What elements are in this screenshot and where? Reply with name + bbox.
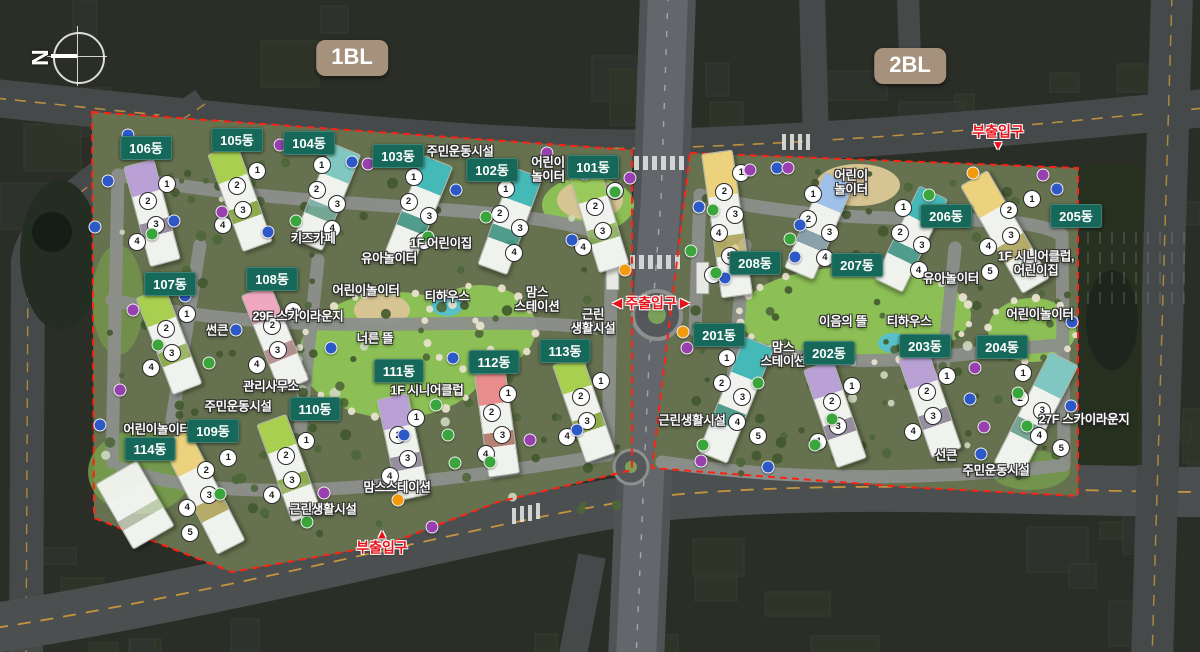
facility-label: 티하우스 [425, 290, 470, 304]
block-badge: 2BL [874, 48, 946, 84]
point-marker [430, 399, 443, 412]
point-marker [146, 228, 159, 241]
facility-label: 맘스 스테이션 [515, 287, 560, 314]
unit-number-badge: 2 [491, 205, 509, 223]
point-marker [1021, 420, 1034, 433]
point-marker [480, 211, 493, 224]
unit-number-badge: 2 [157, 320, 175, 338]
facility-label: 키즈카페 [291, 232, 336, 246]
facility-label: 29F 스카이라운지 [252, 310, 343, 324]
unit-number-badge: 1 [804, 185, 822, 203]
unit-number-badge: 1 [405, 168, 423, 186]
unit-number-badge: 3 [924, 407, 942, 425]
compass-north-letter: N [27, 49, 54, 66]
compass-north-pointer [51, 54, 77, 58]
point-marker [695, 455, 708, 468]
point-marker [484, 456, 497, 469]
point-marker [784, 233, 797, 246]
point-marker [789, 251, 802, 264]
point-marker [398, 429, 411, 442]
unit-number-badge: 4 [505, 244, 523, 262]
building-label: 201동 [693, 323, 745, 347]
facility-label: 유아놀이터 [361, 252, 417, 266]
facility-label: 맘스 스테이션 [761, 342, 806, 369]
building-label: 207동 [831, 253, 883, 277]
unit-number-badge: 1 [938, 367, 956, 385]
point-marker [152, 339, 165, 352]
unit-number-badge: 1 [297, 432, 315, 450]
point-marker [1065, 400, 1078, 413]
point-marker [290, 215, 303, 228]
unit-number-badge: 2 [713, 374, 731, 392]
building-label: 113동 [540, 339, 591, 363]
point-marker [609, 186, 622, 199]
unit-number-badge: 5 [749, 427, 767, 445]
point-marker [975, 448, 988, 461]
unit-number-badge: 2 [918, 383, 936, 401]
unit-number-badge: 3 [493, 426, 511, 444]
building-label: 205동 [1050, 204, 1102, 228]
point-marker [262, 226, 275, 239]
facility-label: 이음의 뜰 [819, 315, 867, 329]
unit-number-badge: 2 [197, 461, 215, 479]
building-label: 114동 [125, 437, 176, 461]
unit-number-badge: 1 [219, 449, 237, 467]
point-marker [524, 434, 537, 447]
unit-number-badge: 1 [313, 156, 331, 174]
unit-number-badge: 2 [823, 393, 841, 411]
building-label: 105동 [211, 128, 263, 152]
unit-number-badge: 4 [1030, 427, 1048, 445]
point-marker [677, 326, 690, 339]
point-marker [346, 156, 359, 169]
facility-label: 1F 시니어클럽, 어린이집 [998, 251, 1074, 278]
entrance-arrow-down-icon: ▼ [992, 139, 1005, 152]
unit-number-badge: 4 [979, 238, 997, 256]
point-marker [794, 219, 807, 232]
point-marker [426, 521, 439, 534]
building-label: 107동 [144, 272, 196, 296]
building-label: 106동 [120, 136, 172, 160]
facility-label: 썬큰 [206, 324, 228, 338]
point-marker [392, 494, 405, 507]
building-label: 103동 [372, 144, 424, 168]
point-marker [681, 342, 694, 355]
point-marker [619, 264, 632, 277]
point-marker [693, 201, 706, 214]
point-marker [1051, 183, 1064, 196]
unit-number-badge: 1 [178, 305, 196, 323]
point-marker [964, 393, 977, 406]
unit-number-badge: 2 [891, 224, 909, 242]
facility-label: 1F 시니어클럽 [390, 384, 463, 398]
unit-number-badge: 3 [821, 224, 839, 242]
building-label: 101동 [567, 155, 619, 179]
unit-number-badge: 1 [248, 162, 266, 180]
unit-number-badge: 3 [913, 236, 931, 254]
unit-number-badge: 4 [128, 233, 146, 251]
unit-number-badge: 2 [139, 192, 157, 210]
unit-number-badge: 1 [894, 199, 912, 217]
facility-label: 근린생활시설 [658, 414, 725, 428]
facility-label: 근린생활시설 [289, 503, 356, 517]
point-marker [89, 221, 102, 234]
building-label: 109동 [187, 419, 239, 443]
unit-number-badge: 2 [308, 181, 326, 199]
entrance-arrow-right-icon: ▶ [680, 295, 690, 311]
facility-label: 어린이 놀이터 [834, 170, 868, 197]
facility-label: 너른 뜰 [357, 332, 394, 346]
unit-number-badge: 1 [497, 180, 515, 198]
facility-label: 주민운동시설 [962, 464, 1029, 478]
sub-entrance-label: 부출입구▼ [972, 125, 1024, 152]
point-marker [94, 419, 107, 432]
unit-number-badge: 3 [733, 388, 751, 406]
unit-number-badge: 2 [1000, 201, 1018, 219]
unit-number-badge: 1 [843, 377, 861, 395]
building-label: 204동 [976, 335, 1028, 359]
facility-label: 선큰 [935, 449, 957, 463]
building-label: 110동 [290, 397, 341, 421]
unit-number-badge: 3 [283, 471, 301, 489]
point-marker [1012, 387, 1025, 400]
point-marker [325, 342, 338, 355]
facility-label: 어린이놀이터 [1006, 308, 1073, 322]
unit-number-badge: 5 [1052, 439, 1070, 457]
facility-label: 어린이 놀이터 [531, 157, 565, 184]
main-entrance-label: ◀주출입구▶ [612, 293, 690, 313]
facility-label: 주민운동시설 [204, 400, 271, 414]
block-badge: 1BL [316, 40, 388, 76]
point-marker [214, 488, 227, 501]
point-marker [697, 439, 710, 452]
point-marker [449, 457, 462, 470]
unit-number-badge: 1 [407, 409, 425, 427]
point-marker [826, 413, 839, 426]
unit-number-badge: 5 [181, 524, 199, 542]
facility-label: 1F 어린이집 [410, 237, 472, 251]
point-marker [969, 362, 982, 375]
building-label: 208동 [729, 251, 781, 275]
building-label: 203동 [899, 334, 951, 358]
building-label: 111동 [374, 359, 424, 383]
point-marker [624, 172, 637, 185]
point-marker [685, 245, 698, 258]
building-label: 102동 [466, 158, 518, 182]
building-label: 108동 [246, 267, 298, 291]
unit-number-badge: 1 [499, 385, 517, 403]
building-label: 206동 [920, 204, 972, 228]
unit-number-badge: 2 [277, 447, 295, 465]
point-marker [114, 384, 127, 397]
point-marker [447, 352, 460, 365]
unit-number-badge: 1 [592, 372, 610, 390]
unit-number-badge: 3 [420, 207, 438, 225]
point-marker [127, 304, 140, 317]
facility-label: 티하우스 [887, 315, 932, 329]
point-marker [450, 184, 463, 197]
point-marker [752, 377, 765, 390]
unit-number-badge: 2 [715, 183, 733, 201]
point-marker [923, 189, 936, 202]
unit-number-badge: 3 [163, 344, 181, 362]
entrance-arrow-left-icon: ◀ [612, 295, 622, 311]
compass-ring [53, 32, 105, 84]
unit-number-badge: 3 [269, 341, 287, 359]
point-marker [762, 461, 775, 474]
facility-label: 어린이놀이터 [123, 423, 190, 437]
point-marker [967, 167, 980, 180]
facility-label: 근린 생활시설 [571, 309, 616, 336]
point-marker [782, 162, 795, 175]
point-marker [710, 267, 723, 280]
unit-number-badge: 4 [178, 499, 196, 517]
point-marker [1037, 169, 1050, 182]
unit-number-badge: 4 [142, 359, 160, 377]
unit-number-badge: 4 [710, 224, 728, 242]
unit-number-badge: 5 [981, 263, 999, 281]
point-marker [571, 424, 584, 437]
unit-number-badge: 4 [904, 423, 922, 441]
unit-number-badge: 2 [400, 193, 418, 211]
point-marker [707, 204, 720, 217]
point-marker [230, 324, 243, 337]
sub-entrance-label: ▲부출입구 [356, 528, 408, 555]
unit-number-badge: 1 [718, 349, 736, 367]
facility-label: 맘스스테이션 [363, 481, 430, 495]
facility-label: 유아놀이터 [923, 272, 979, 286]
point-marker [168, 215, 181, 228]
unit-number-badge: 4 [214, 216, 232, 234]
point-marker [301, 516, 314, 529]
point-marker [216, 206, 229, 219]
unit-number-badge: 1 [1023, 190, 1041, 208]
point-marker [203, 357, 216, 370]
unit-number-badge: 1 [158, 175, 176, 193]
unit-number-badge: 1 [1014, 364, 1032, 382]
point-marker [978, 421, 991, 434]
building-label: 112동 [469, 350, 520, 374]
point-marker [566, 234, 579, 247]
unit-number-badge: 2 [572, 388, 590, 406]
unit-number-badge: 3 [328, 195, 346, 213]
facility-label: 어린이놀이터 [332, 284, 399, 298]
unit-number-badge: 4 [263, 486, 281, 504]
unit-number-badge: 2 [228, 177, 246, 195]
unit-number-badge: 4 [248, 356, 266, 374]
unit-number-badge: 3 [511, 219, 529, 237]
unit-number-badge: 4 [728, 413, 746, 431]
unit-number-badge: 3 [234, 201, 252, 219]
unit-number-badge: 3 [399, 450, 417, 468]
unit-number-badge: 3 [594, 222, 612, 240]
unit-number-badge: 2 [586, 198, 604, 216]
point-marker [442, 429, 455, 442]
point-marker [744, 164, 757, 177]
facility-label: 27F 스카이라운지 [1038, 413, 1129, 427]
facility-label: 주민운동시설 [426, 145, 493, 159]
unit-number-badge: 2 [483, 404, 501, 422]
building-label: 104동 [283, 131, 335, 155]
site-plan-map: N 1234101동1234102동1234103동1234104동123410… [0, 0, 1200, 652]
facility-label: 관리사무소 [243, 380, 299, 394]
unit-number-badge: 3 [1002, 227, 1020, 245]
unit-number-badge: 3 [726, 206, 744, 224]
building-label: 202동 [803, 341, 855, 365]
point-marker [102, 175, 115, 188]
point-marker [318, 487, 331, 500]
point-marker [809, 439, 822, 452]
